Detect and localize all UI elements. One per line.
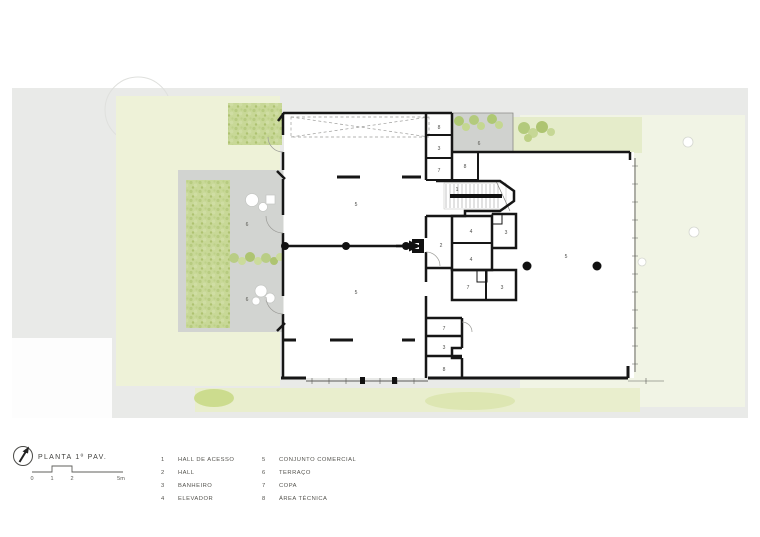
tree-icon <box>683 137 693 147</box>
legend-label: ELEVADOR <box>178 496 213 502</box>
room-label: 4 <box>470 257 473 263</box>
legend-label: COPA <box>279 483 297 489</box>
floor-plan-sheet: 5 5 5 6 6 6 8 3 7 8 1 2 4 4 3 7 3 7 3 8 … <box>0 0 760 537</box>
room-label: 4 <box>470 229 473 235</box>
room-label: 1 <box>456 187 459 193</box>
legend-num: 4 <box>161 496 165 502</box>
scale-bar: 0 1 2 5m <box>30 466 125 482</box>
room-label: 3 <box>505 230 508 236</box>
room-label: 2 <box>440 243 443 249</box>
scale-tick: 5m <box>117 476 125 482</box>
terrace-top <box>452 113 513 152</box>
legend-num: 6 <box>262 470 266 476</box>
legend: 1 HALL DE ACESSO 2 HALL 3 BANHEIRO 4 ELE… <box>161 457 356 502</box>
room-label: 5 <box>565 254 568 260</box>
room-label: 6 <box>478 141 481 147</box>
room-label: 3 <box>501 285 504 291</box>
room-label: 3 <box>443 345 446 351</box>
tree-icon <box>689 227 699 237</box>
floor-plan-drawing: 5 5 5 6 6 6 8 3 7 8 1 2 4 4 3 7 3 7 3 8 … <box>0 0 760 537</box>
legend-num: 2 <box>161 470 165 476</box>
legend-num: 8 <box>262 496 266 502</box>
legend-num: 1 <box>161 457 165 463</box>
scale-tick: 0 <box>30 476 33 482</box>
room-label: 5 <box>355 290 358 296</box>
legend-num: 5 <box>262 457 266 463</box>
room-label: 7 <box>467 285 470 291</box>
terrace-planter <box>186 180 230 328</box>
lawn-bottom-strip <box>195 388 640 412</box>
room-label: 6 <box>246 297 249 303</box>
legend-num: 3 <box>161 483 165 489</box>
planting-strip-top-left <box>228 103 282 145</box>
room-label: 7 <box>438 168 441 174</box>
room-label: 8 <box>443 367 446 373</box>
legend-num: 7 <box>262 483 266 489</box>
page-title: PLANTA 1º PAV. <box>38 454 107 461</box>
legend-label: TERRAÇO <box>279 470 311 476</box>
legend-label: CONJUNTO COMERCIAL <box>279 457 356 463</box>
legend-label: ÁREA TÉCNICA <box>279 495 327 502</box>
legend-label: HALL DE ACESSO <box>178 457 234 463</box>
room-label: 8 <box>438 125 441 131</box>
room-label: 3 <box>438 146 441 152</box>
room-label: 5 <box>355 202 358 208</box>
tree-icon <box>638 258 646 266</box>
title-block: PLANTA 1º PAV. 0 1 2 5m <box>14 447 126 483</box>
legend-label: HALL <box>178 470 195 476</box>
room-label: 7 <box>443 326 446 332</box>
terrace-left <box>178 170 284 332</box>
room-label: 8 <box>464 164 467 170</box>
legend-label: BANHEIRO <box>178 483 212 489</box>
scale-tick: 2 <box>70 476 73 482</box>
room-label: 6 <box>246 222 249 228</box>
scale-tick: 1 <box>50 476 53 482</box>
stair-handrail <box>450 194 502 198</box>
